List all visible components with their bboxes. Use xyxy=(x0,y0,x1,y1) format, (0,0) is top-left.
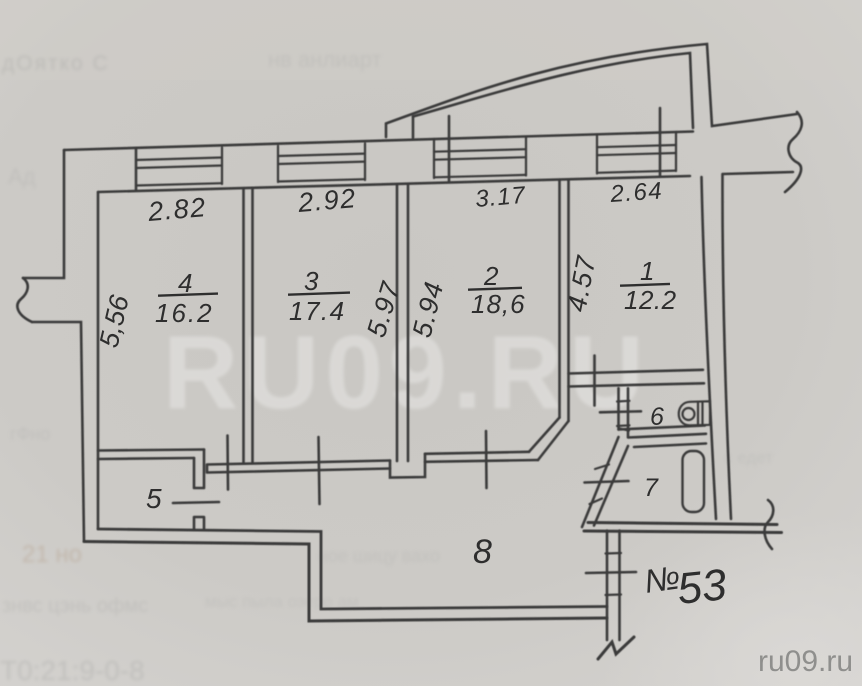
svg-text:7: 7 xyxy=(644,474,659,502)
svg-text:21 но: 21 но xyxy=(22,541,82,568)
svg-text:знвс цэнь офмс: знвс цэнь офмс xyxy=(2,595,148,617)
svg-text:2.92: 2.92 xyxy=(296,183,358,218)
svg-text:16.2: 16.2 xyxy=(155,298,214,328)
svg-text:1: 1 xyxy=(640,256,654,286)
svg-text:12.2: 12.2 xyxy=(624,285,677,315)
svg-text:18,6: 18,6 xyxy=(471,289,526,319)
svg-text:ru09.ru: ru09.ru xyxy=(758,645,853,678)
svg-text:гФно: гФно xyxy=(10,424,50,444)
svg-text:ное шицу вахо: ное шицу вахо xyxy=(318,546,440,566)
svg-text:Т0:21:9-0-8: Т0:21:9-0-8 xyxy=(0,655,145,686)
svg-text:2.64: 2.64 xyxy=(609,177,664,208)
svg-text:2: 2 xyxy=(483,261,499,291)
svg-text:Ад: Ад xyxy=(8,164,36,189)
svg-text:2.82: 2.82 xyxy=(146,192,208,227)
svg-text:3.17: 3.17 xyxy=(474,182,528,213)
svg-text:нв анлиарт: нв анлиарт xyxy=(268,47,382,72)
svg-text:6: 6 xyxy=(650,403,664,431)
svg-text:17.4: 17.4 xyxy=(289,296,346,326)
svg-text:53: 53 xyxy=(675,560,729,614)
svg-text:с едет: с едет xyxy=(724,448,773,467)
svg-text:3: 3 xyxy=(304,266,319,296)
svg-text:5: 5 xyxy=(146,483,162,514)
svg-text:дОятко С: дОятко С xyxy=(2,52,110,75)
svg-text:8: 8 xyxy=(473,533,492,571)
